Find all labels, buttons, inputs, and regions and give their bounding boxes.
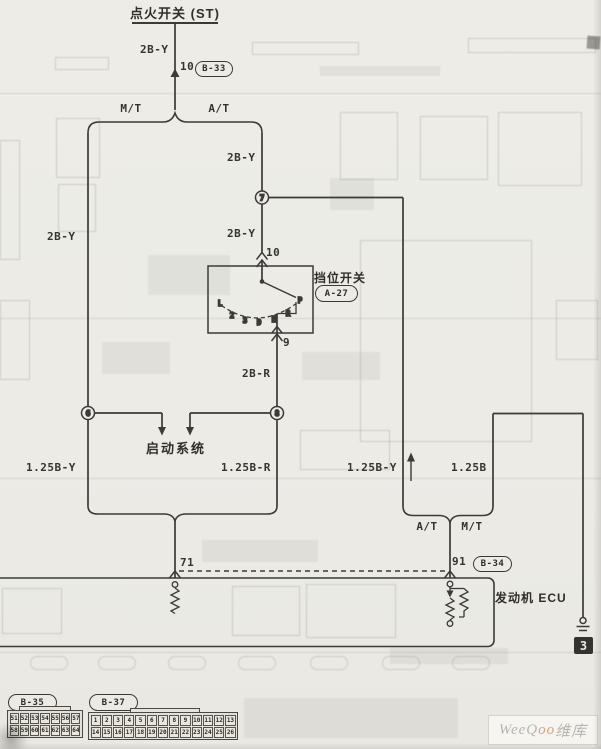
pin-cell: 64 <box>71 725 80 736</box>
engine-ecu-box <box>0 578 494 647</box>
wire-label-2by-at-lower: 2B-Y <box>227 227 256 240</box>
ground-terminal <box>580 618 586 624</box>
connector-ref-b34-text: B-34 <box>481 559 505 569</box>
pin-cell: 21 <box>169 727 179 738</box>
start-system-label: 启动系统 <box>146 438 206 457</box>
wire-label-2br: 2B-R <box>242 367 271 380</box>
pin-cell: 8 <box>169 715 179 726</box>
pin-cell: 19 <box>147 727 157 738</box>
connector-ref-a27-text: A-27 <box>325 289 349 299</box>
connector-b37-row2: 14 15 16 17 18 19 20 21 22 23 24 25 26 <box>90 726 236 738</box>
ground-hatches <box>577 627 590 631</box>
wire-splice8-start <box>190 413 271 427</box>
pin-91-label: 91 <box>452 555 466 568</box>
gear-pos-P: P <box>298 296 303 305</box>
connector-b37-row1: 1 2 3 4 5 6 7 8 9 10 11 12 13 <box>90 714 236 726</box>
pin-cell: 2 <box>102 715 112 726</box>
gear-pos-D: D <box>257 318 262 327</box>
watermark-oo: oo <box>538 722 555 739</box>
connector-b35-body: 51 52 53 54 55 56 57 58 59 60 61 62 63 6… <box>7 710 83 738</box>
at-top-label: A/T <box>208 102 229 115</box>
gear-pos-N: N <box>272 315 277 324</box>
wire-label-2by-left: 2B-Y <box>47 230 76 243</box>
gear-switch-label: 挡位开关 <box>314 269 366 286</box>
connector-b35-pinout: 51 52 53 54 55 56 57 58 59 60 61 62 63 6… <box>7 710 83 738</box>
pin-cell: 23 <box>192 727 202 738</box>
connector-ref-b34: B-34 <box>473 556 512 572</box>
ignition-switch-label: 点火开关 (ST) <box>130 3 220 22</box>
pin-cell: 18 <box>135 727 145 738</box>
arrow-start-left <box>158 427 166 436</box>
pin-cell: 24 <box>203 727 213 738</box>
pin-cell: 7 <box>158 715 168 726</box>
pin-10-switch-label: 10 <box>266 246 280 259</box>
connector-b37-ref-text: B-37 <box>102 698 126 708</box>
direction-arrow-head <box>407 453 415 462</box>
mt-bottom-label: M/T <box>461 520 482 533</box>
pin-cell: 20 <box>158 727 168 738</box>
wire-label-2by-at-upper: 2B-Y <box>227 151 256 164</box>
pin-cell: 5 <box>135 715 145 726</box>
pin-cell: 16 <box>113 727 123 738</box>
pin-9-label: 9 <box>283 336 290 349</box>
pin-cell: 56 <box>61 713 70 724</box>
pin-cell: 52 <box>20 713 29 724</box>
engine-ecu-label: 发动机 ECU <box>495 589 567 606</box>
wire-label-125br: 1.25B-R <box>221 461 271 474</box>
connector-b37-body: 1 2 3 4 5 6 7 8 9 10 11 12 13 14 15 16 1… <box>88 712 238 740</box>
pin-cell: 4 <box>124 715 134 726</box>
pin-cell: 57 <box>71 713 80 724</box>
pin-cell: 55 <box>51 713 60 724</box>
pin-cell: 51 <box>10 713 19 724</box>
splice-8-number: 8 <box>275 409 280 418</box>
wire-label-125b: 1.25B <box>451 461 487 474</box>
connector-ref-a27: A-27 <box>315 285 358 302</box>
pin-71-label: 71 <box>180 556 194 569</box>
wire-label-125by-right: 1.25B-Y <box>347 461 397 474</box>
wire-mt-ground-path <box>493 414 583 618</box>
split-brace-top <box>88 113 262 133</box>
ground-ref-box: 3 <box>574 637 593 654</box>
wire-splice6-start <box>95 413 163 427</box>
merge-brace-left <box>88 506 277 521</box>
pin-cell: 13 <box>225 715 235 726</box>
at-bottom-label: A/T <box>416 520 437 533</box>
ecu91-bottom-terminal <box>447 621 453 627</box>
gear-pos-R: R <box>286 309 291 318</box>
pin-cell: 59 <box>20 725 29 736</box>
wire-splice7-right <box>269 198 404 507</box>
pin-cell: 61 <box>40 725 49 736</box>
lever-arm <box>262 282 296 298</box>
splice-7-number: 7 <box>260 194 265 203</box>
pin-cell: 60 <box>30 725 39 736</box>
ground-ref-text: 3 <box>580 639 587 653</box>
connector-b37-pinout: 1 2 3 4 5 6 7 8 9 10 11 12 13 14 15 16 1… <box>88 712 238 740</box>
connector-ref-b33: B-33 <box>195 61 233 77</box>
splice-6-number: 6 <box>86 409 91 418</box>
mt-top-label: M/T <box>120 102 141 115</box>
pin-cell: 3 <box>113 715 123 726</box>
watermark-latin: WeeQ <box>499 722 538 739</box>
watermark-cn: 维库 <box>555 720 587 741</box>
pin-cell: 26 <box>225 727 235 738</box>
ecu91-resistor-right <box>459 589 468 618</box>
ecu71-resistor <box>171 588 179 614</box>
ecu91-terminal <box>447 581 453 587</box>
gear-pos-L: L <box>218 299 223 308</box>
pin-cell: 53 <box>30 713 39 724</box>
arrow-start-right <box>186 427 194 436</box>
wiring-diagram-svg: 7 6 8 <box>0 0 601 749</box>
weeqoo-watermark: WeeQoo维库 <box>488 715 598 745</box>
connector-b35-row2: 58 59 60 61 62 63 64 <box>9 724 81 736</box>
pin-cell: 15 <box>102 727 112 738</box>
ecu91-resistor-left <box>446 598 454 620</box>
pin-cell: 25 <box>214 727 224 738</box>
pin-cell: 58 <box>10 725 19 736</box>
connector-ref-b33-text: B-33 <box>202 64 226 74</box>
connector-marker-b33 <box>171 69 180 78</box>
scanned-wiring-diagram-page: 7 6 8 <box>0 0 601 749</box>
pin-cell: 14 <box>91 727 101 738</box>
pin-cell: 11 <box>203 715 213 726</box>
wire-label-2by-ignition: 2B-Y <box>140 43 169 56</box>
pin-10-top-label: 10 <box>180 60 194 73</box>
connector-b35-row1: 51 52 53 54 55 56 57 <box>9 712 81 724</box>
pin-cell: 1 <box>91 715 101 726</box>
wire-label-125by-left: 1.25B-Y <box>26 461 76 474</box>
ecu71-terminal <box>172 582 178 588</box>
pin-cell: 54 <box>40 713 49 724</box>
pin-cell: 10 <box>192 715 202 726</box>
pin-cell: 62 <box>51 725 60 736</box>
gear-pos-3: 3 <box>243 316 248 325</box>
pin-cell: 9 <box>180 715 190 726</box>
pin-cell: 17 <box>124 727 134 738</box>
pin-cell: 63 <box>61 725 70 736</box>
pin-cell: 22 <box>180 727 190 738</box>
pin-cell: 12 <box>214 715 224 726</box>
gear-pos-2: 2 <box>230 311 235 320</box>
pin-cell: 6 <box>147 715 157 726</box>
ecu91-arrow <box>447 591 454 598</box>
